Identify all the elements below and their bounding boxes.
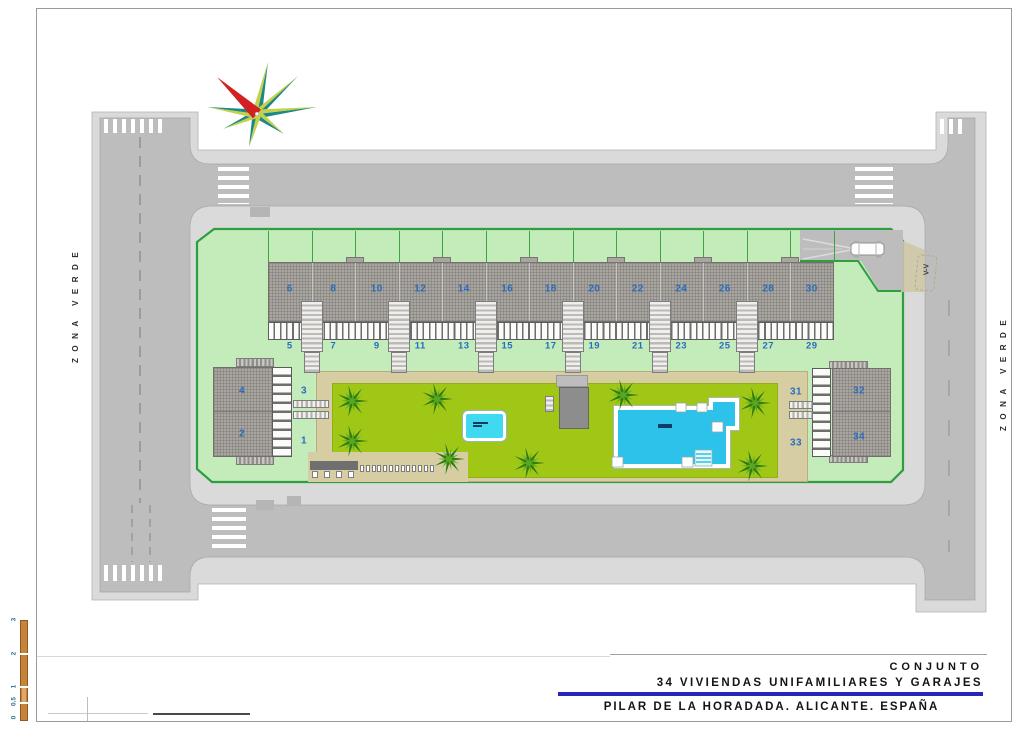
house-number: 25 <box>719 341 731 352</box>
palm-tree-icon <box>606 378 640 412</box>
right-block-roof-ridge <box>832 411 891 412</box>
house-number: 29 <box>806 341 818 352</box>
pergola-post <box>324 471 330 478</box>
pool-text-mark <box>473 425 482 427</box>
roof-unit-divider <box>790 263 791 321</box>
left-block-walk <box>293 411 329 419</box>
plot-divider-line <box>268 231 269 262</box>
pergola-canopy <box>310 461 358 470</box>
palm-tree-icon <box>335 424 369 458</box>
title-accent-line <box>558 692 983 696</box>
pergola-post <box>312 471 318 478</box>
crosswalk <box>855 167 893 204</box>
zona-verde-label-right: ZONA VERDE <box>999 296 1008 431</box>
house-number: 8 <box>330 284 336 295</box>
fence-post <box>383 465 387 472</box>
house-number: 1 <box>301 436 307 447</box>
palm-tree-icon <box>335 384 369 418</box>
roof-unit-divider <box>703 263 704 321</box>
compass-rose <box>207 62 317 147</box>
title-line-1: CONJUNTO <box>889 661 983 673</box>
house-number: 3 <box>301 386 307 397</box>
pool-text-mark <box>658 424 672 428</box>
house-number: 16 <box>501 284 513 295</box>
palm-tree-icon <box>432 442 466 476</box>
house-number: 23 <box>675 341 687 352</box>
house-number: 30 <box>806 284 818 295</box>
sidewalk-block <box>250 207 270 217</box>
plot-divider-line <box>573 231 574 262</box>
scale-tick-label: 0.5 <box>11 696 18 708</box>
fence-post <box>377 465 381 472</box>
plot-divider-line <box>486 231 487 262</box>
fence-post <box>372 465 376 472</box>
sidewalk-block <box>287 496 301 505</box>
scale-bar-division <box>20 653 28 655</box>
right-block-walk <box>789 411 813 419</box>
stair-tower <box>649 301 671 352</box>
house-number: 7 <box>330 341 336 352</box>
fence-post <box>406 465 410 472</box>
left-block-cap <box>236 456 274 465</box>
house-number: 2 <box>239 429 245 440</box>
house-number: 9 <box>374 341 380 352</box>
palm-tree-icon <box>420 382 454 416</box>
house-number: 34 <box>853 432 865 443</box>
stair-stub <box>304 352 320 373</box>
fence-post <box>418 465 422 472</box>
plot-divider-line <box>399 231 400 262</box>
scale-tick-label: 2 <box>11 648 18 660</box>
scale-bar <box>20 620 28 721</box>
stair-stub <box>652 352 668 373</box>
signature-rule-dark <box>153 713 250 715</box>
plot-divider-line <box>660 231 661 262</box>
plot-divider-line <box>834 231 835 262</box>
fence-post <box>360 465 364 472</box>
right-block-walk <box>789 401 813 409</box>
stair-stub <box>391 352 407 373</box>
crosswalk <box>931 119 967 134</box>
left-block-roof-ridge <box>213 411 273 412</box>
roof-unit-divider <box>355 263 356 321</box>
house-number: 17 <box>545 341 557 352</box>
right-block-roof <box>832 368 891 457</box>
stair-tower <box>388 301 410 352</box>
right-block-terraces <box>812 368 831 457</box>
pool-text-mark <box>473 422 488 424</box>
scale-tick-label: 3 <box>11 614 18 626</box>
fence-post <box>395 465 399 472</box>
house-number: 14 <box>458 284 470 295</box>
title-block-divider <box>87 697 88 722</box>
palm-tree-icon <box>738 386 772 420</box>
childrens-pool <box>463 411 506 441</box>
house-number: 32 <box>853 386 865 397</box>
scale-tick-label: 0 <box>11 712 18 724</box>
house-number: 18 <box>545 284 557 295</box>
fence-post <box>412 465 416 472</box>
left-block-roof <box>213 367 273 457</box>
left-block-terraces <box>272 367 292 457</box>
crosswalk <box>104 565 162 581</box>
roof-unit-divider <box>616 263 617 321</box>
palm-tree-icon <box>735 449 769 483</box>
fence-post <box>401 465 405 472</box>
site-base-layer <box>0 0 1024 732</box>
fence-post <box>366 465 370 472</box>
stair-stub <box>739 352 755 373</box>
house-number: 26 <box>719 284 731 295</box>
crosswalk <box>218 167 249 204</box>
entrance-label: V-V <box>924 255 931 285</box>
house-number: 20 <box>588 284 600 295</box>
crosswalk <box>212 508 246 552</box>
scale-bar-half-segment <box>22 688 26 702</box>
title-line-2: 34 VIVIENDAS UNIFAMILIARES Y GARAJES <box>657 677 983 689</box>
pool-house-ladder <box>545 396 554 412</box>
stair-stub <box>565 352 581 373</box>
house-number: 12 <box>414 284 426 295</box>
stair-tower <box>301 301 323 352</box>
stair-tower <box>736 301 758 352</box>
scale-tick-label: 1 <box>11 681 18 693</box>
house-number: 6 <box>287 284 293 295</box>
pergola-post <box>336 471 342 478</box>
house-number: 13 <box>458 341 470 352</box>
stair-tower <box>475 301 497 352</box>
house-number: 19 <box>588 341 600 352</box>
site-plan-page: ZONA VERDE ZONA VERDE V-V CONJUNTO 34 VI… <box>0 0 1024 732</box>
roof-unit-divider <box>442 263 443 321</box>
house-number: 22 <box>632 284 644 295</box>
signature-rule-light <box>48 713 148 714</box>
house-number: 15 <box>501 341 513 352</box>
title-block-top-rule <box>610 654 987 655</box>
sidewalk-block <box>256 500 274 510</box>
house-number: 28 <box>762 284 774 295</box>
pool-house <box>559 387 589 429</box>
scale-bar-division <box>20 702 28 704</box>
crosswalk <box>104 119 162 133</box>
left-block-cap <box>236 358 274 367</box>
fence-post <box>424 465 428 472</box>
plot-divider-line <box>747 231 748 262</box>
house-number: 24 <box>675 284 687 295</box>
house-number: 11 <box>415 341 426 352</box>
pergola-post <box>348 471 354 478</box>
title-block-faint-rule <box>36 656 610 657</box>
stair-stub <box>478 352 494 373</box>
fence-post <box>389 465 393 472</box>
car-icon <box>851 241 884 258</box>
house-number: 27 <box>762 341 774 352</box>
house-number: 4 <box>239 386 245 397</box>
house-number: 21 <box>632 341 644 352</box>
house-number: 10 <box>371 284 383 295</box>
house-number: 5 <box>287 341 293 352</box>
plot-divider-line <box>312 231 313 262</box>
house-number: 33 <box>790 438 802 449</box>
zona-verde-label-left: ZONA VERDE <box>71 228 80 363</box>
title-line-3: PILAR DE LA HORADADA. ALICANTE. ESPAÑA <box>593 701 950 713</box>
house-number: 31 <box>790 387 802 398</box>
pool-house-canopy <box>556 375 588 387</box>
palm-tree-icon <box>512 446 546 480</box>
roof-unit-divider <box>529 263 530 321</box>
left-block-walk <box>293 400 329 408</box>
stair-tower <box>562 301 584 352</box>
